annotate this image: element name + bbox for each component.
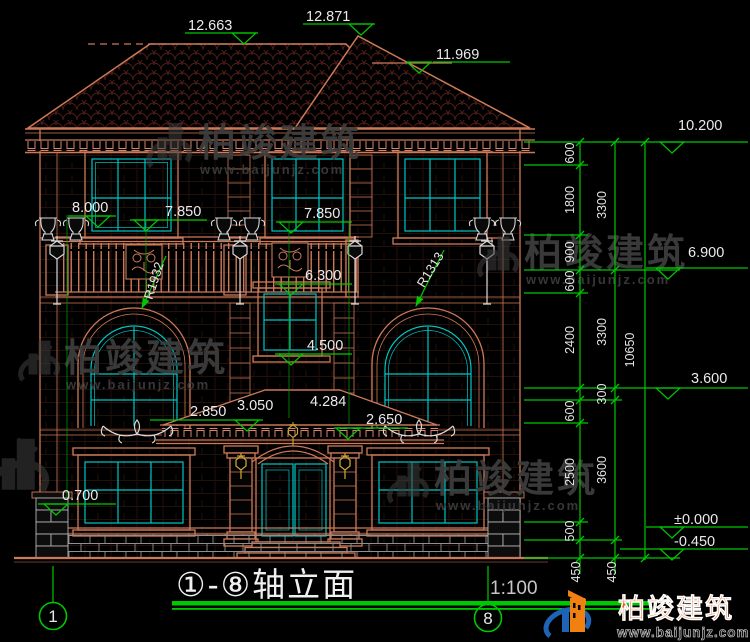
dim-label: 3300 (595, 318, 609, 346)
elevation-label: 11.969 (436, 47, 479, 63)
elevation-label: 12.871 (306, 9, 350, 25)
dim-label: 3600 (595, 456, 609, 484)
dim-label: 600 (563, 271, 577, 292)
elevation-label: 0.700 (62, 488, 98, 504)
dim-label: 450 (569, 562, 583, 583)
cad-viewport: 柏竣建筑 www.baijunjz.com 柏竣建筑 www.baijunjz.… (0, 0, 750, 642)
elevation-label: 6.900 (688, 245, 724, 261)
brand-logo-icon (546, 590, 589, 636)
elevation-label: 2.650 (366, 412, 402, 428)
watermark-logo-icon (0, 440, 45, 499)
axis-number-right: 8 (483, 609, 492, 628)
axis-number-left: 1 (48, 607, 57, 626)
elevation-label: 7.850 (304, 206, 340, 222)
elevation-label: 12.663 (188, 18, 232, 34)
elevation-label: 6.300 (305, 268, 341, 284)
watermark-url: www.baijunjz.com (199, 162, 344, 177)
elevation-label: 7.850 (165, 204, 201, 220)
elevation-label: 8.000 (72, 200, 108, 216)
elevation-label: 4.284 (310, 394, 346, 410)
elevation-label: 3.600 (691, 371, 727, 387)
dim-label: 900 (563, 242, 577, 263)
elevation-label: 4.500 (307, 338, 343, 354)
elevation-label: 3.050 (237, 398, 273, 414)
dim-label: 1800 (563, 186, 577, 214)
dim-label: 300 (595, 384, 609, 405)
drawing-scale: 1:100 (490, 578, 538, 599)
watermark-url: www.baijunjz.com (65, 377, 210, 392)
dim-label: 2500 (563, 458, 577, 486)
dim-label: 2400 (563, 326, 577, 354)
watermark-url: www.baijunjz.com (435, 498, 580, 513)
dim-label: 10650 (623, 333, 637, 368)
elevation-label: 2.850 (190, 404, 226, 420)
elevation-label: 10.200 (678, 118, 722, 134)
elevation-label: -0.450 (674, 534, 715, 550)
brand-logo-text: 柏竣建筑 (618, 593, 734, 624)
watermark-url: www.baijunjz.com (525, 272, 670, 287)
watermark-brand: 柏竣建筑 (524, 233, 688, 275)
dim-label: 600 (563, 401, 577, 422)
watermark-brand: 柏竣建筑 (64, 338, 228, 380)
dim-label: 450 (605, 562, 619, 583)
watermark-brand: 柏竣建筑 (198, 123, 362, 165)
dim-label: 3300 (595, 191, 609, 219)
elevation-label: ±0.000 (674, 512, 718, 528)
dim-label: 500 (563, 521, 577, 542)
brand-logo-url: www.baijunjz.com (616, 625, 750, 640)
dim-label: 600 (563, 143, 577, 164)
drawing-title: ①-⑧轴立面 (176, 566, 357, 603)
railing-ornament (272, 243, 308, 277)
elevation-drawing: 柏竣建筑 www.baijunjz.com 柏竣建筑 www.baijunjz.… (0, 0, 750, 642)
brand-logo: 柏竣建筑 www.baijunjz.com (546, 590, 750, 640)
